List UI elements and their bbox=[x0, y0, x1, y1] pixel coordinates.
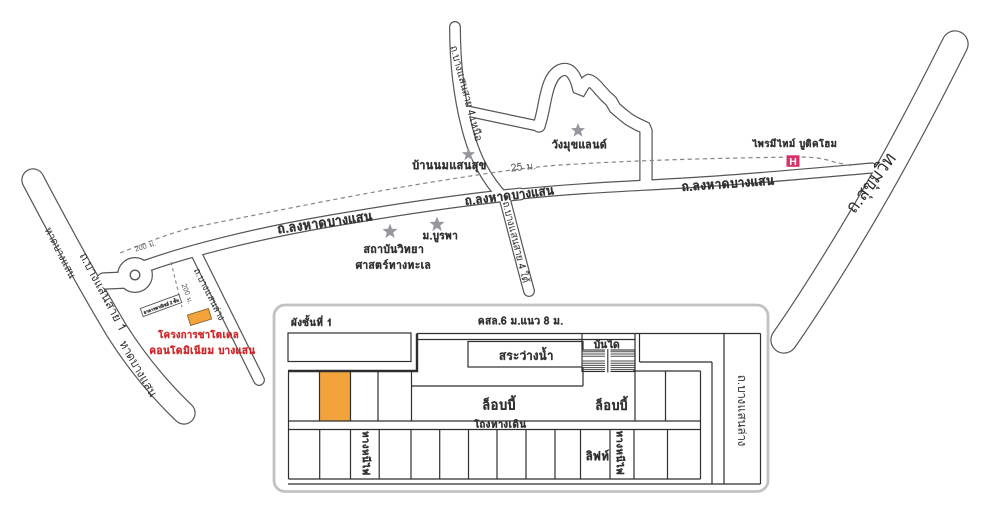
svg-text:H: H bbox=[789, 156, 797, 168]
